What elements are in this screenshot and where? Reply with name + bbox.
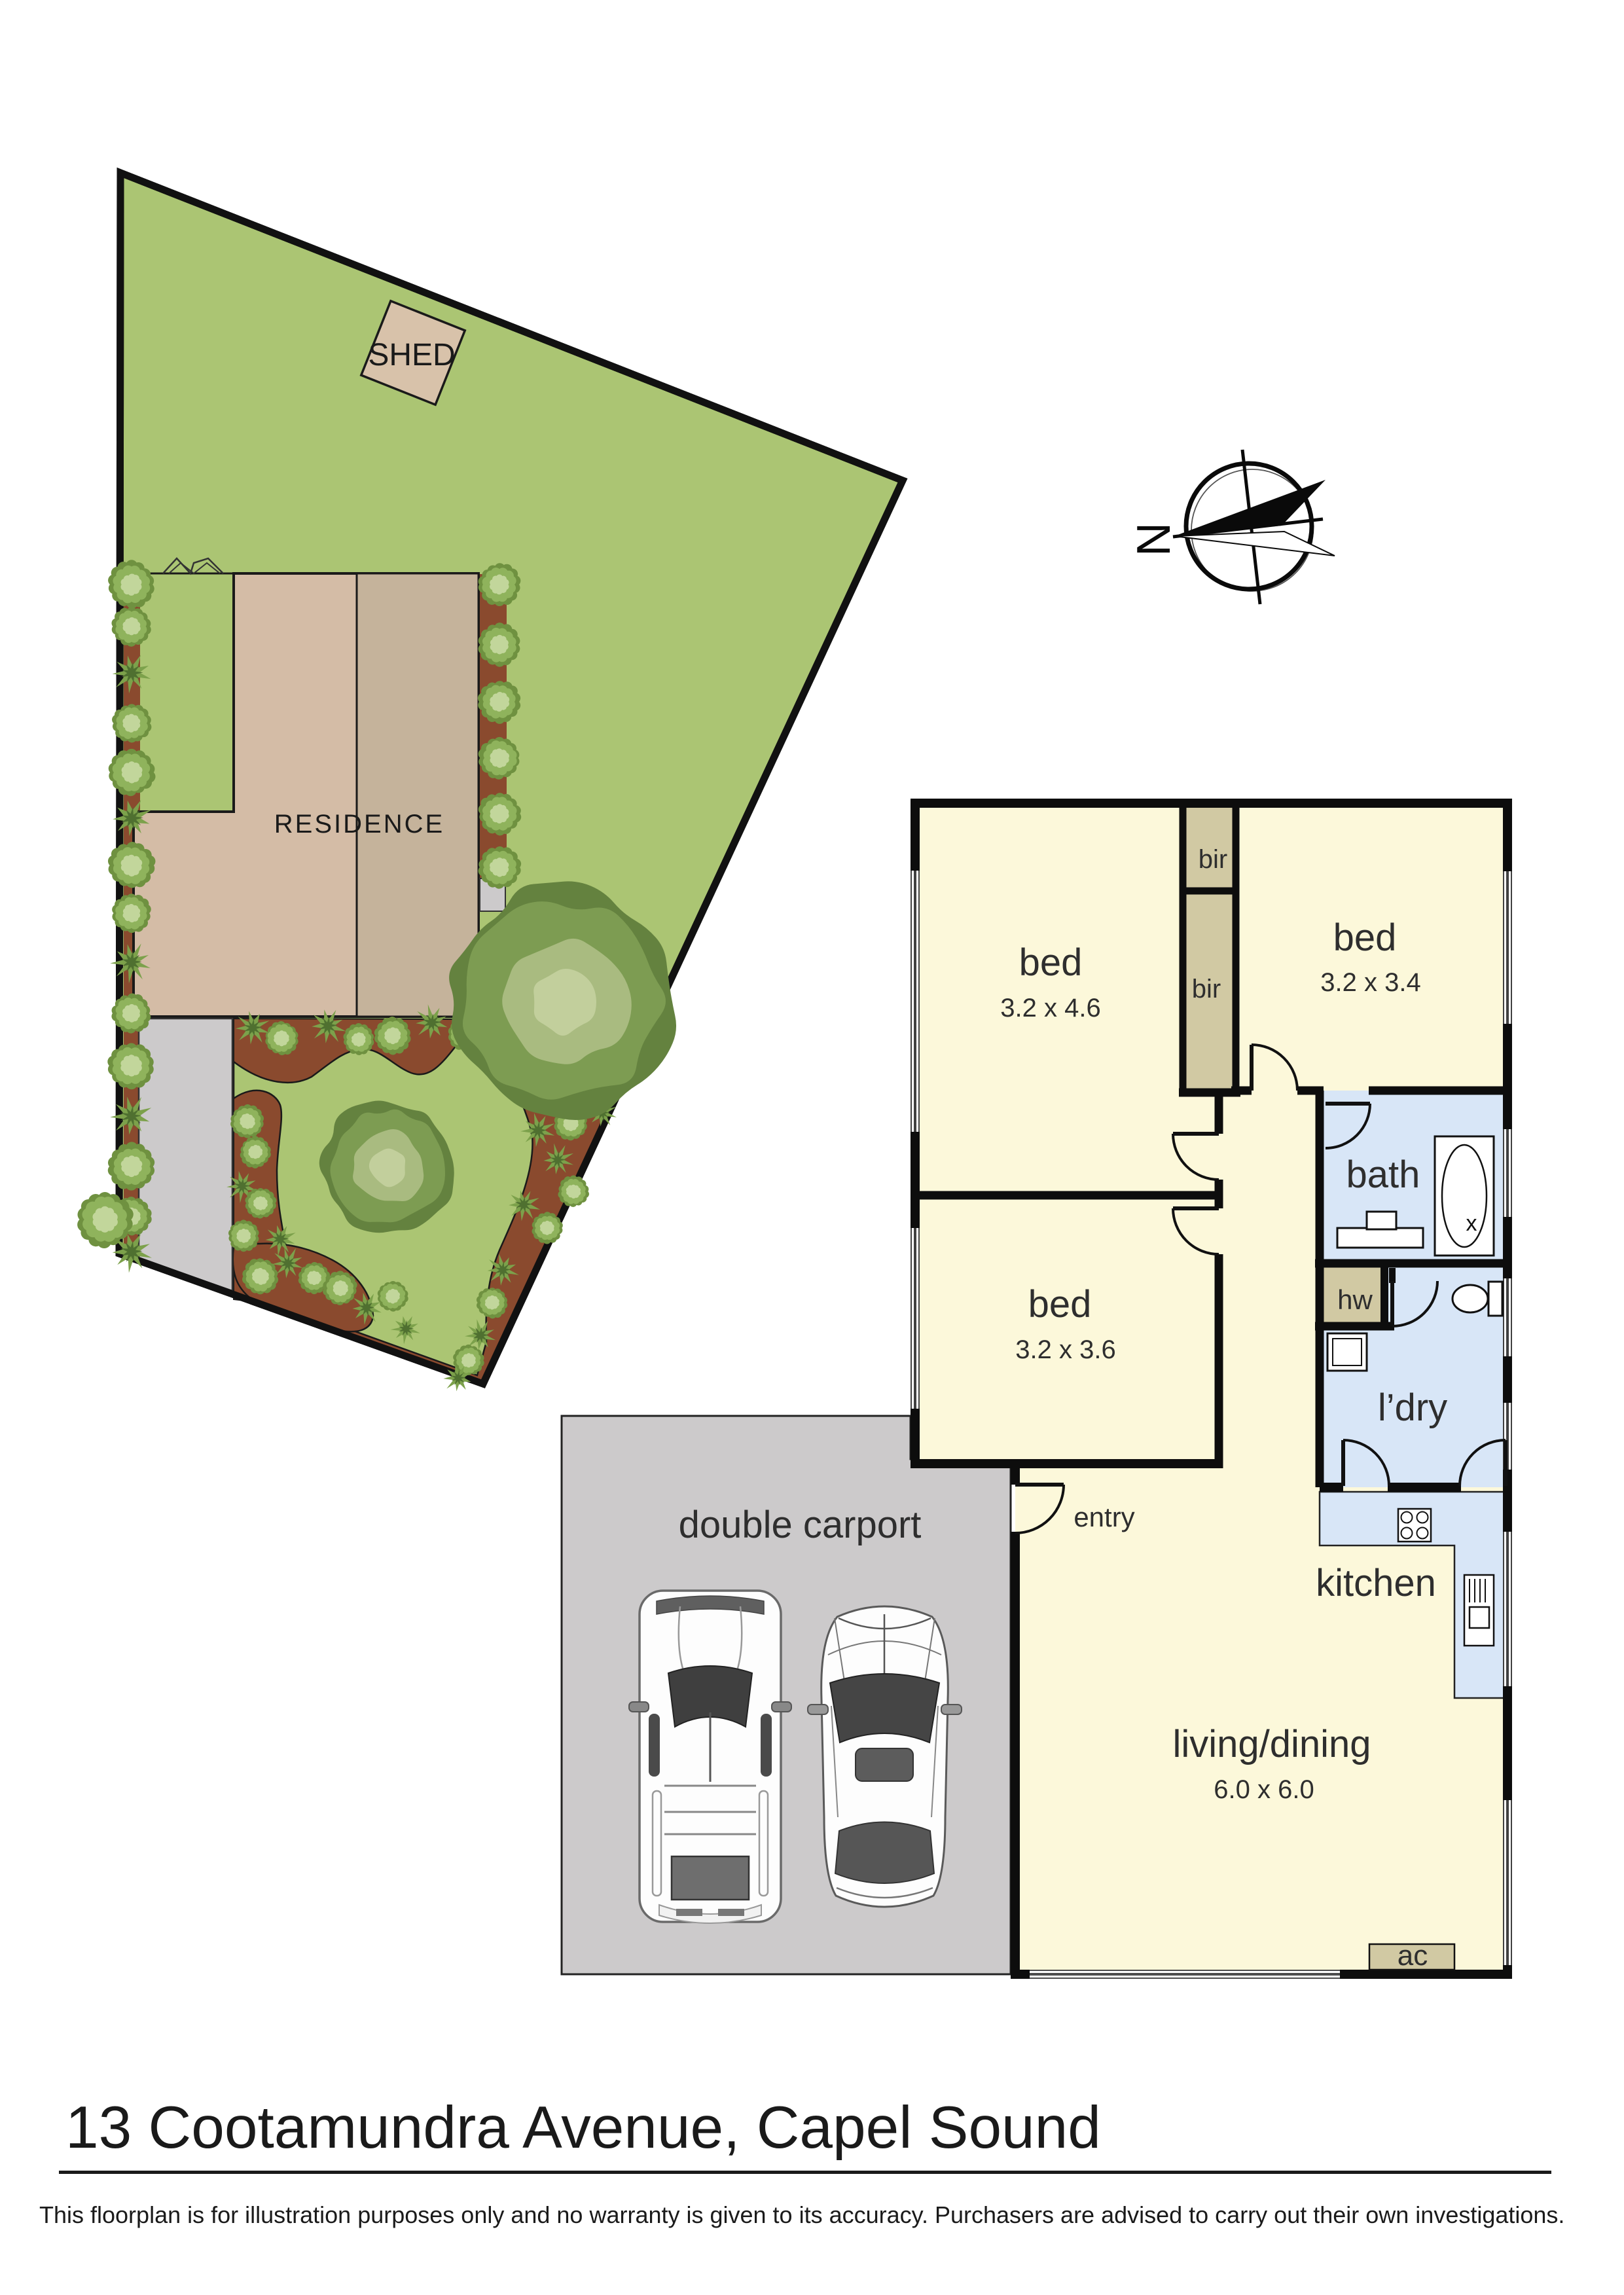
svg-text:6.0 x 6.0: 6.0 x 6.0 bbox=[1214, 1775, 1314, 1804]
svg-text:RESIDENCE: RESIDENCE bbox=[274, 810, 444, 839]
svg-text:living/dining: living/dining bbox=[1172, 1723, 1371, 1765]
svg-text:bed: bed bbox=[1028, 1283, 1092, 1326]
svg-text:13 Cootamundra Avenue, Capel S: 13 Cootamundra Avenue, Capel Sound bbox=[65, 2095, 1101, 2161]
svg-text:bed: bed bbox=[1333, 916, 1397, 959]
svg-text:hw: hw bbox=[1337, 1284, 1373, 1315]
svg-text:3.2 x 3.4: 3.2 x 3.4 bbox=[1320, 968, 1420, 997]
svg-text:bath: bath bbox=[1346, 1153, 1420, 1196]
svg-text:x: x bbox=[1466, 1211, 1477, 1236]
svg-text:bir: bir bbox=[1192, 975, 1221, 1003]
svg-text:ac: ac bbox=[1398, 1940, 1428, 1972]
svg-text:l’dry: l’dry bbox=[1378, 1386, 1447, 1429]
svg-text:entry: entry bbox=[1074, 1502, 1134, 1532]
svg-text:kitchen: kitchen bbox=[1316, 1562, 1436, 1604]
svg-text:3.2 x 3.6: 3.2 x 3.6 bbox=[1015, 1335, 1115, 1364]
svg-text:3.2 x 4.6: 3.2 x 4.6 bbox=[1000, 994, 1100, 1022]
svg-text:This floorplan is for illustra: This floorplan is for illustration purpo… bbox=[39, 2201, 1564, 2228]
svg-text:SHED: SHED bbox=[368, 338, 455, 372]
svg-text:bed: bed bbox=[1019, 941, 1083, 984]
svg-text:double carport: double carport bbox=[679, 1504, 922, 1546]
svg-text:bir: bir bbox=[1199, 845, 1227, 874]
svg-text:N: N bbox=[1128, 522, 1180, 556]
